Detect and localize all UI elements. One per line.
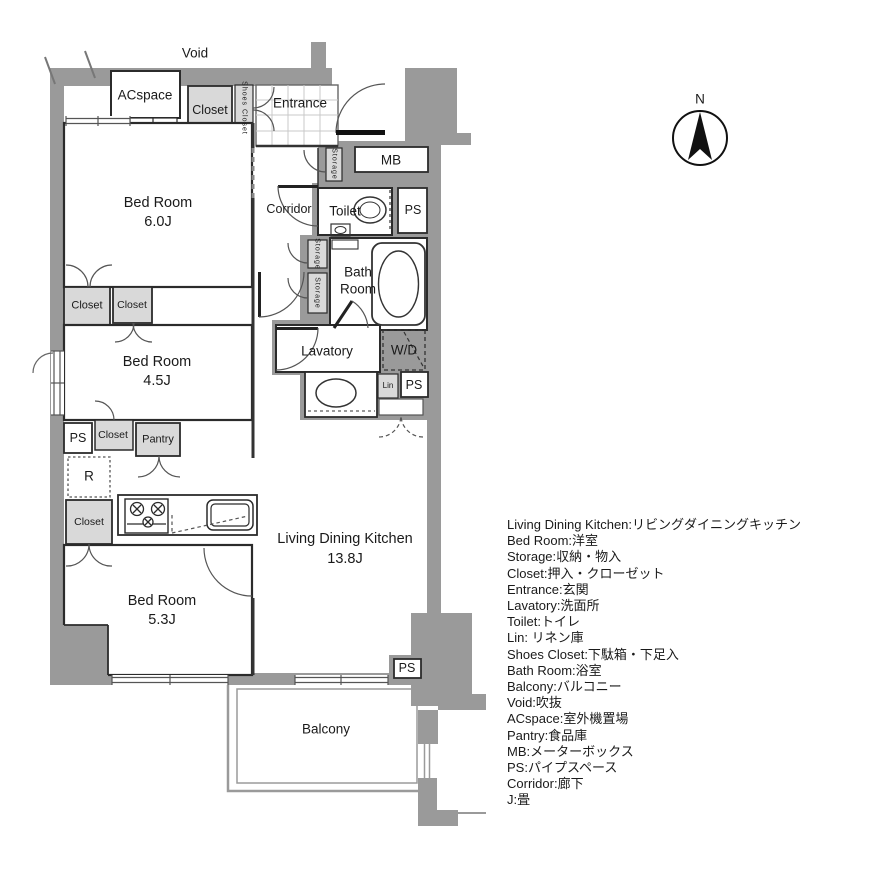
bedroom3-name: Bed Room bbox=[128, 594, 197, 609]
bath-label-1: Bath bbox=[344, 265, 372, 279]
storage1-label: Storage bbox=[314, 238, 321, 270]
compass-north-label: N bbox=[695, 92, 705, 106]
closet2-label: Closet bbox=[117, 300, 147, 311]
storage-mb-label: Storage bbox=[331, 148, 338, 180]
legend-line: Corridor:廊下 bbox=[507, 776, 867, 792]
mb-label: MB bbox=[381, 153, 401, 167]
balcony-label: Balcony bbox=[302, 722, 350, 736]
closet-top-label: Closet bbox=[192, 104, 227, 117]
bedroom1-name: Bed Room bbox=[124, 196, 193, 211]
legend-line: PS:パイプスペース bbox=[507, 760, 867, 776]
bedroom3-size: 5.3J bbox=[148, 613, 175, 628]
legend-line: Pantry:食品庫 bbox=[507, 728, 867, 744]
wd-label: W/D bbox=[391, 343, 417, 357]
closet-bl-label: Closet bbox=[74, 517, 104, 528]
legend-line: Bath Room:浴室 bbox=[507, 663, 867, 679]
legend-line: Closet:押入・クローゼット bbox=[507, 566, 867, 582]
refrigerator-label: R bbox=[84, 469, 94, 483]
ps-top-label: PS bbox=[405, 204, 422, 217]
shoes-closet-label: Shoes Closet bbox=[241, 81, 248, 135]
closet-mid-label: Closet bbox=[98, 430, 128, 441]
ldk-name: Living Dining Kitchen bbox=[277, 532, 412, 547]
bedroom1-size: 6.0J bbox=[144, 215, 171, 230]
lavatory-label: Lavatory bbox=[301, 344, 353, 358]
ps-bottom-label: PS bbox=[399, 662, 416, 675]
bath-label-2: Room bbox=[340, 282, 376, 296]
floor-plan-page: Void ACspace Closet Shoes Closet Entranc… bbox=[0, 0, 872, 872]
legend-line: Living Dining Kitchen:リビングダイニングキッチン bbox=[507, 517, 867, 533]
legend-line: ACspace:室外機置場 bbox=[507, 711, 867, 727]
ps-mid-label: PS bbox=[406, 379, 423, 392]
entrance-label: Entrance bbox=[273, 96, 327, 110]
lin-label: Lin bbox=[383, 382, 394, 390]
legend-line: Lin: リネン庫 bbox=[507, 630, 867, 646]
legend-line: Entrance:玄関 bbox=[507, 582, 867, 598]
legend: Living Dining Kitchen:リビングダイニングキッチン Bed … bbox=[507, 517, 867, 809]
legend-line: Storage:収納・物入 bbox=[507, 549, 867, 565]
legend-line: Balcony:バルコニー bbox=[507, 679, 867, 695]
legend-line: J:畳 bbox=[507, 792, 867, 808]
legend-line: Lavatory:洗面所 bbox=[507, 598, 867, 614]
legend-line: MB:メーターボックス bbox=[507, 744, 867, 760]
legend-line: Shoes Closet:下駄箱・下足入 bbox=[507, 647, 867, 663]
ps-left-label: PS bbox=[70, 432, 87, 445]
storage2-label: Storage bbox=[314, 277, 321, 309]
legend-line: Void:吹抜 bbox=[507, 695, 867, 711]
bedroom2-size: 4.5J bbox=[143, 374, 170, 389]
bedroom2-name: Bed Room bbox=[123, 355, 192, 370]
pantry-label: Pantry bbox=[142, 435, 174, 446]
legend-line: Bed Room:洋室 bbox=[507, 533, 867, 549]
corridor-label: Corridor bbox=[266, 203, 311, 216]
toilet-label: Toilet bbox=[329, 204, 361, 218]
closet1-label: Closet bbox=[71, 301, 102, 312]
ldk-size: 13.8J bbox=[327, 552, 362, 567]
acspace-label: ACspace bbox=[118, 88, 173, 102]
void-label: Void bbox=[182, 46, 208, 60]
legend-line: Toilet:トイレ bbox=[507, 614, 867, 630]
